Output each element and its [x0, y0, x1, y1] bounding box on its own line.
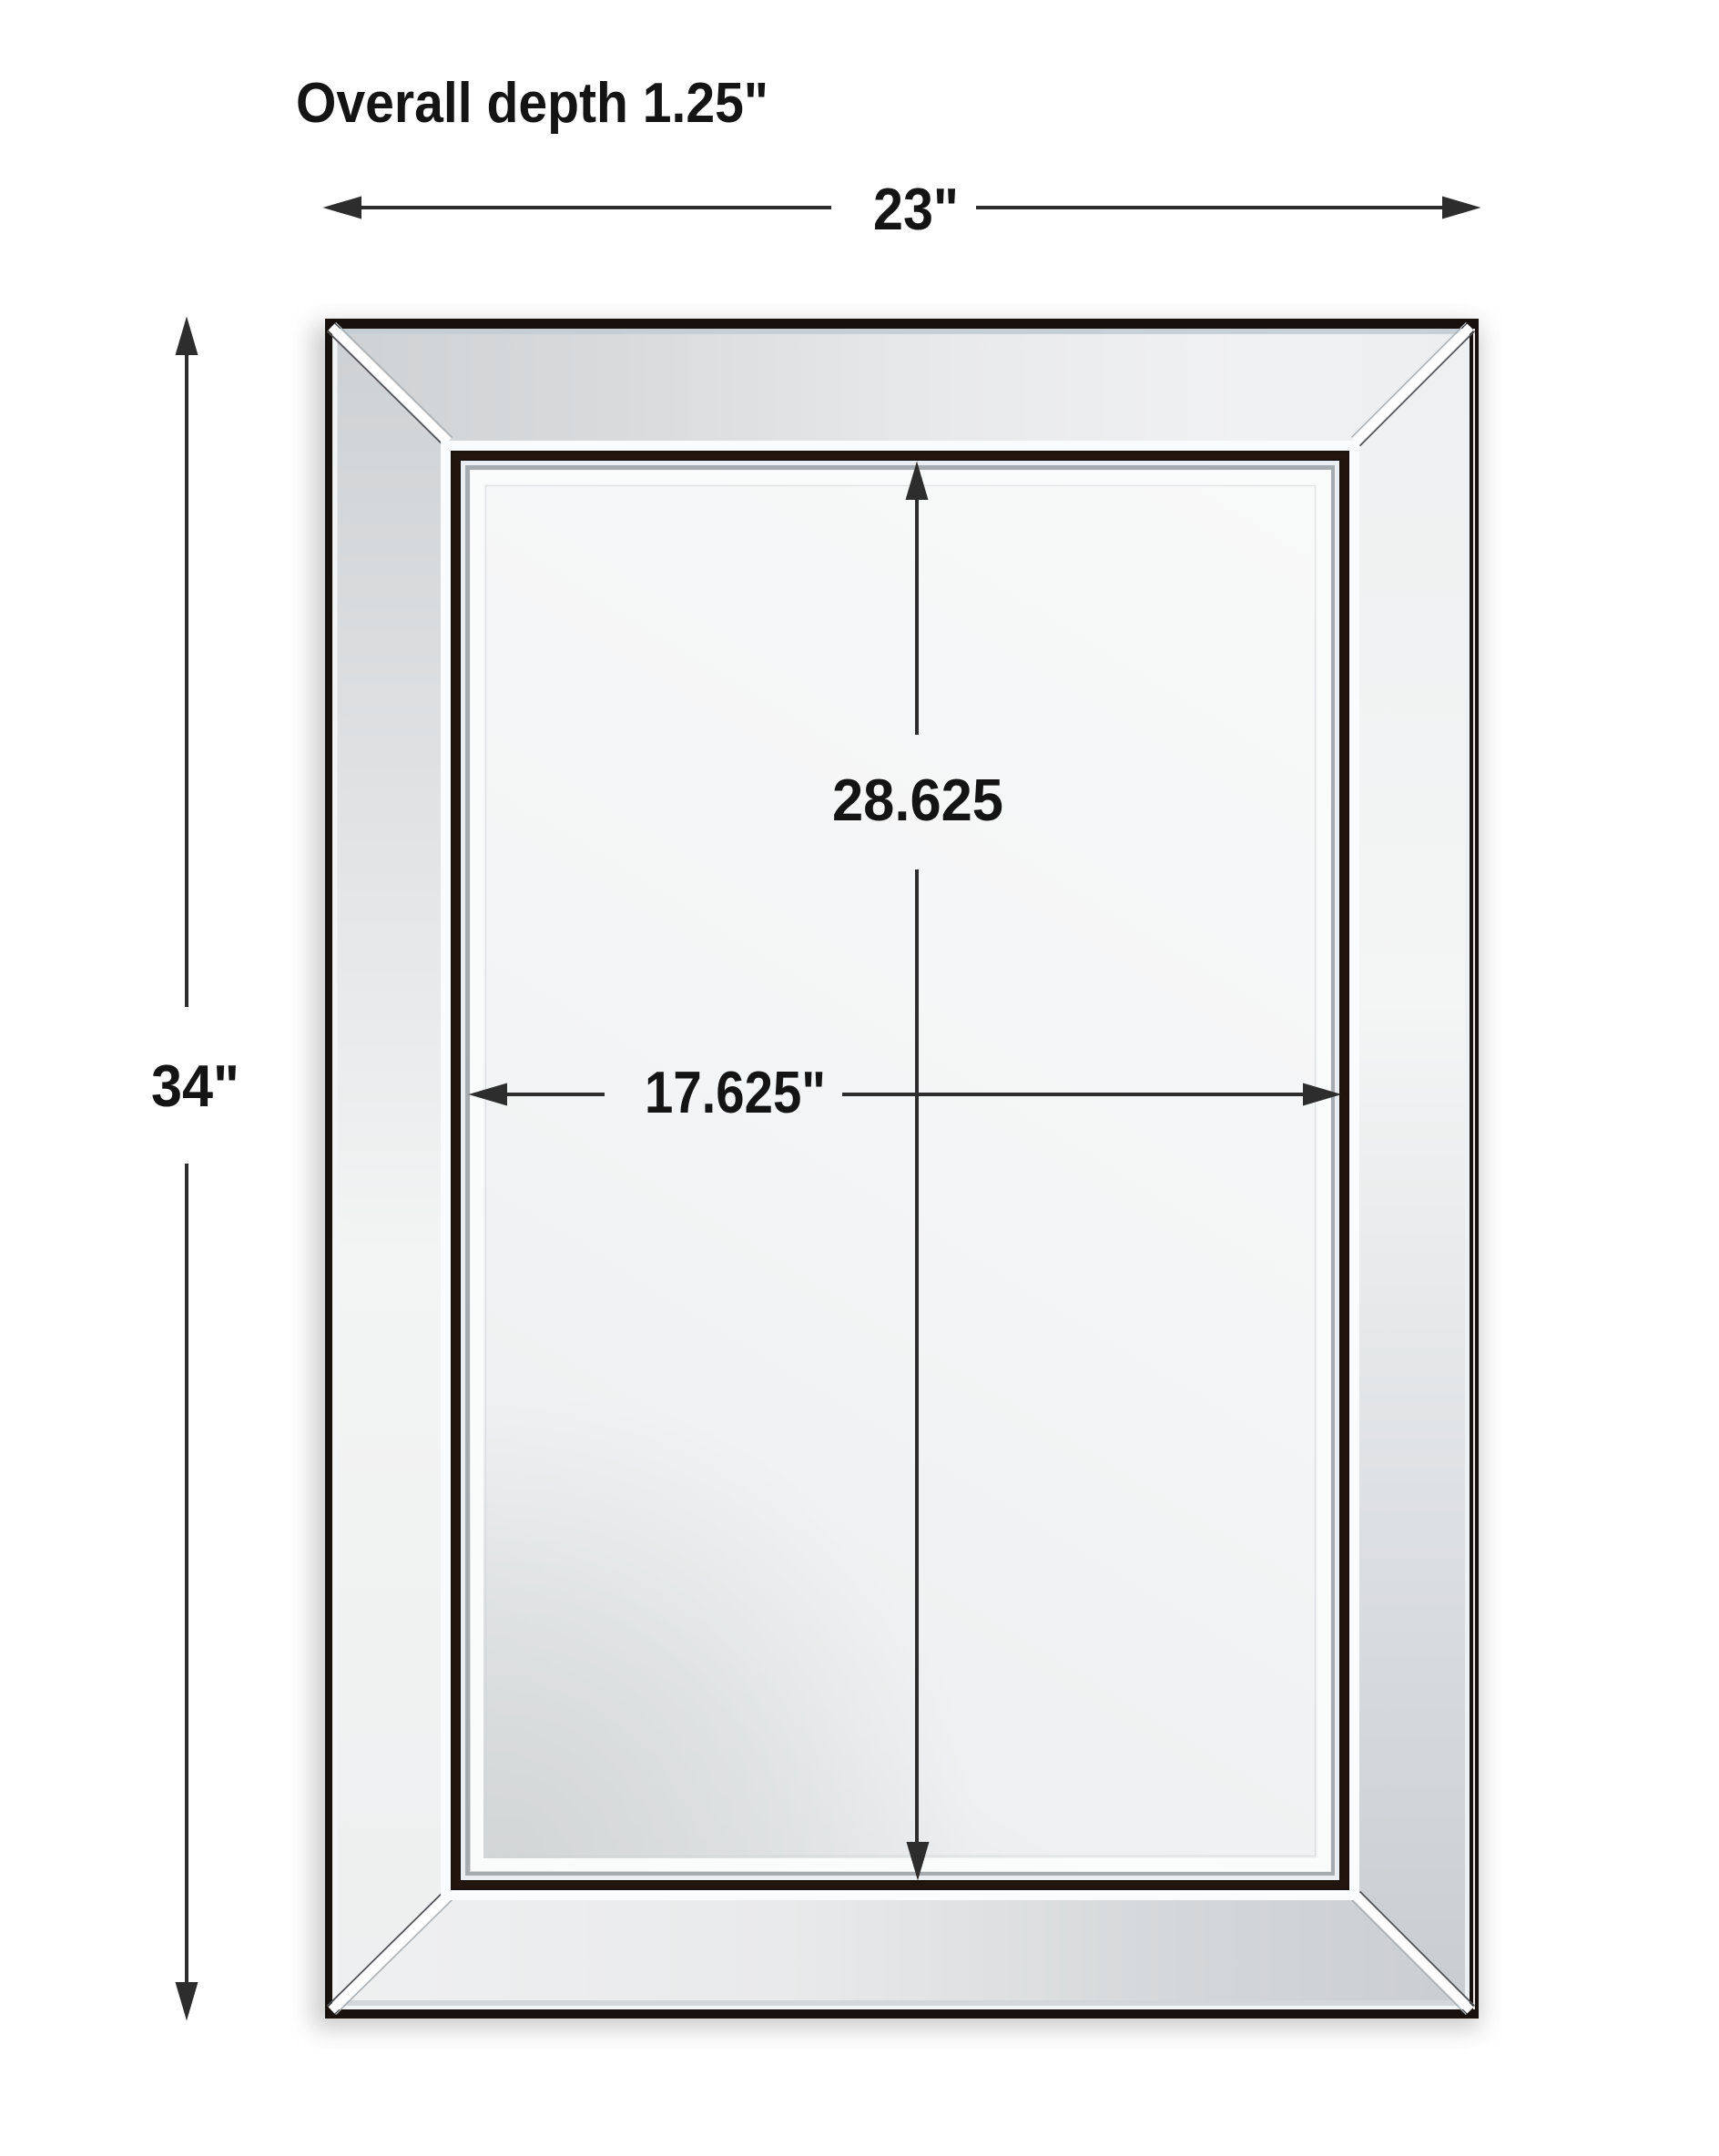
- svg-text:Overall depth 1.25": Overall depth 1.25": [296, 72, 768, 135]
- svg-text:34": 34": [151, 1053, 239, 1119]
- svg-text:28.625: 28.625: [832, 767, 1003, 833]
- svg-text:23": 23": [873, 176, 959, 242]
- svg-text:17.625": 17.625": [645, 1059, 826, 1125]
